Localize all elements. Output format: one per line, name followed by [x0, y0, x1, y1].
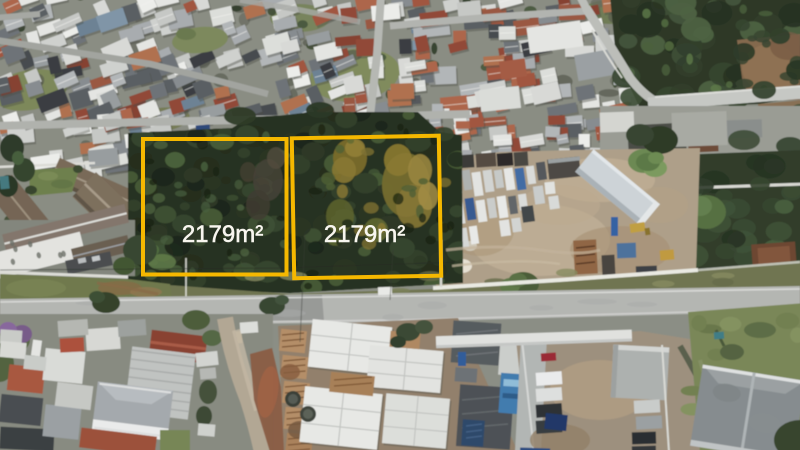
svg-text:2179m²: 2179m² — [182, 221, 263, 248]
svg-text:2179m²: 2179m² — [324, 221, 405, 248]
